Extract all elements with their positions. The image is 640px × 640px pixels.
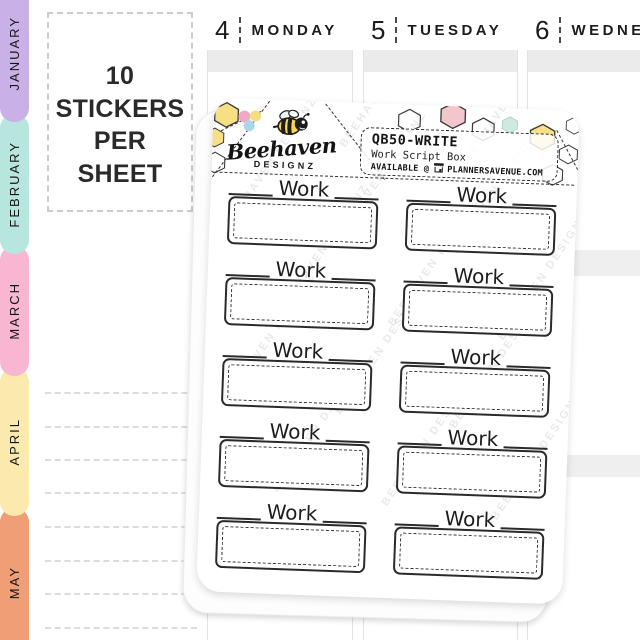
day-divider [239, 17, 241, 43]
month-tab-label: MARCH [7, 282, 22, 340]
day-name: MONDAY [251, 22, 337, 39]
day-divider [559, 17, 561, 43]
brand-sub-text: DESIGNZ [254, 159, 317, 171]
sticker-sheet: BEEHAVEN DESIGNZ BEEHAVEN DESIGNZ BEEHAV… [196, 97, 580, 604]
work-sticker: Work [221, 336, 373, 411]
work-sticker: Work [405, 181, 557, 256]
month-tab-label: FEBRUARY [7, 141, 22, 228]
month-tab-may: MAY [0, 508, 29, 640]
work-sticker: Work [227, 174, 379, 249]
work-sticker: Work [399, 342, 551, 417]
storefront-icon [432, 163, 445, 177]
sticker-box-inner [230, 283, 369, 324]
note-line [45, 627, 197, 629]
day-name: WEDNESDAY [571, 22, 640, 39]
column-shaded-bar [528, 50, 640, 72]
sticker-label: Work [450, 185, 513, 206]
sticker-box [215, 520, 367, 573]
note-line [45, 459, 197, 461]
note-line [45, 526, 197, 528]
month-tab-february: FEBRUARY [0, 114, 29, 254]
sheet-header: Beehaven DESIGNZ QB50-WRITE Work Script … [211, 97, 579, 184]
sticker-box [227, 196, 379, 249]
day-number: 5 [371, 15, 385, 46]
month-tab-label: APRIL [7, 418, 22, 466]
day-header: 5 TUESDAY [371, 12, 502, 48]
day-header: 6 WEDNESDAY [535, 12, 640, 48]
column-shaded-bar [364, 50, 517, 72]
day-number: 6 [535, 15, 549, 46]
sticker-box [396, 445, 548, 498]
work-sticker: Work [393, 504, 545, 579]
brand-logo: Beehaven DESIGNZ [225, 108, 345, 176]
sticker-label: Work [272, 179, 335, 200]
month-tab-march: MARCH [0, 246, 29, 376]
sticker-label: Work [263, 422, 326, 443]
availability-text: AVAILABLE @ [371, 162, 430, 175]
hexagon-icon [439, 102, 467, 130]
sticker-box-inner [233, 202, 372, 243]
sticker-box-inner [405, 371, 544, 412]
note-line [45, 593, 197, 595]
day-name: TUESDAY [407, 22, 502, 39]
work-sticker: Work [215, 498, 367, 573]
sticker-box [405, 203, 557, 256]
note-line [45, 426, 197, 428]
sticker-label: Work [441, 428, 504, 449]
sticker-box [218, 439, 370, 492]
note-line [45, 492, 197, 494]
sticker-label: Work [269, 260, 332, 281]
hexagon-icon [565, 116, 580, 135]
note-line [45, 560, 197, 562]
sticker-label: Work [444, 347, 507, 368]
day-header: 4 MONDAY [215, 12, 338, 48]
day-divider [395, 17, 397, 43]
sticker-box-inner [408, 290, 547, 331]
sticker-count-line2: PER SHEET [49, 125, 191, 190]
column-shaded-bar [208, 50, 352, 72]
work-sticker: Work [218, 417, 370, 492]
sticker-box-inner [227, 364, 366, 405]
sticker-box [224, 277, 376, 330]
sticker-box-inner [399, 533, 538, 574]
sticker-box-inner [402, 452, 541, 493]
work-sticker: Work [402, 262, 554, 337]
work-sticker: Work [224, 255, 376, 330]
sticker-label: Work [266, 341, 329, 362]
note-line [45, 392, 197, 394]
sticker-box [393, 526, 545, 579]
sticker-count-line1: 10 STICKERS [49, 60, 191, 125]
sticker-label: Work [260, 502, 323, 523]
sticker-box-inner [411, 209, 550, 250]
sticker-box [399, 364, 551, 417]
month-tab-april: APRIL [0, 368, 29, 516]
hexagon-icon [501, 116, 519, 134]
product-mockup: 4 MONDAY 5 TUESDAY 6 WEDNESDAY [0, 0, 640, 640]
month-tab-label: MAY [7, 566, 22, 599]
sticker-box [402, 284, 554, 337]
site-text: PLANNERSAVENUE.COM [447, 165, 543, 180]
product-label-box: QB50-WRITE Work Script Box AVAILABLE @ P… [359, 127, 559, 182]
work-sticker: Work [396, 423, 548, 498]
hexagon-icon [558, 144, 579, 165]
sticker-grid: Work Work Work Work Work Work [197, 171, 577, 580]
sticker-count-box: 10 STICKERS PER SHEET [47, 12, 193, 212]
sticker-box-inner [224, 445, 363, 486]
sticker-label: Work [447, 266, 510, 287]
sticker-label: Work [438, 509, 501, 530]
day-number: 4 [215, 15, 229, 46]
sticker-box [221, 358, 373, 411]
month-tab-label: JANUARY [7, 16, 22, 90]
sticker-box-inner [221, 526, 360, 567]
month-tab-january: JANUARY [0, 0, 29, 122]
